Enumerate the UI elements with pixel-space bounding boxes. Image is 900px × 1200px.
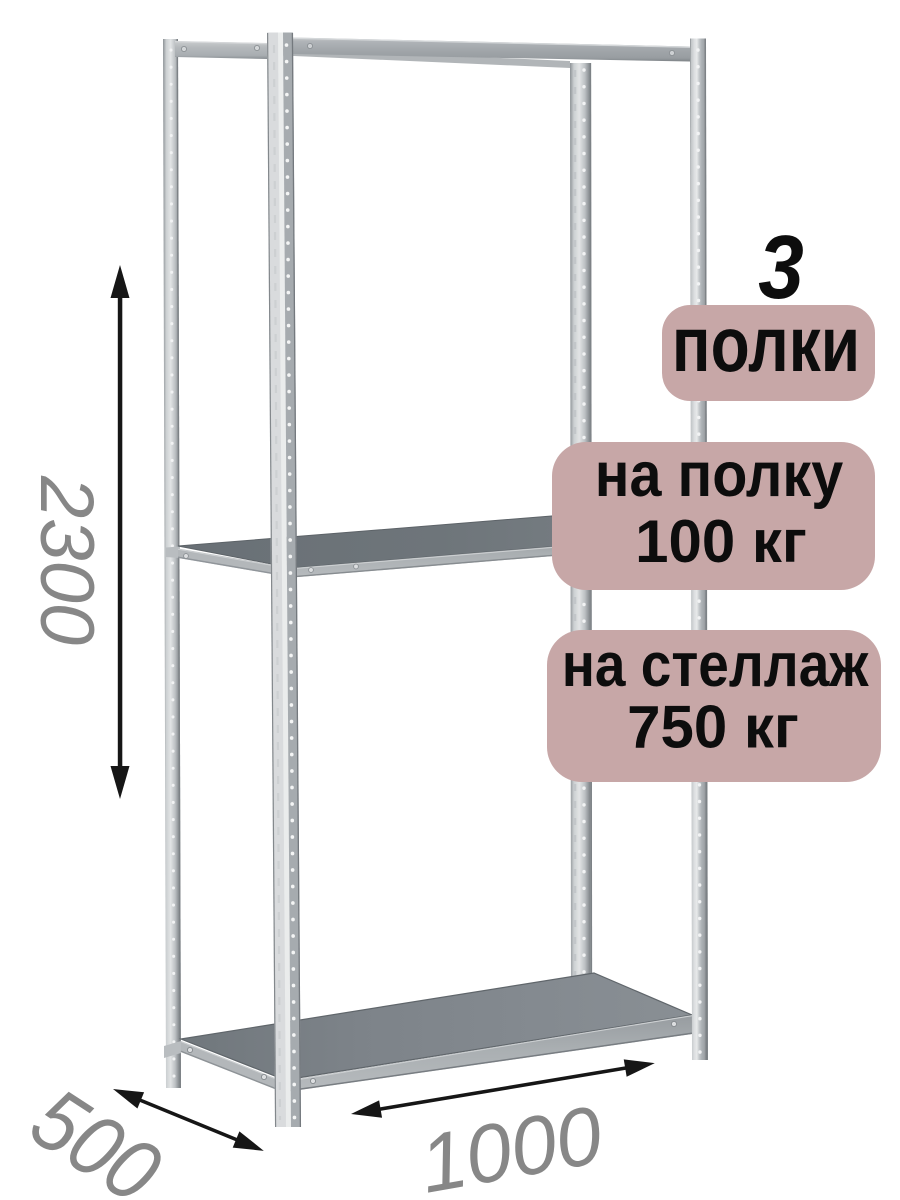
svg-text:полки: полки	[672, 301, 860, 388]
svg-text:на полку: на полку	[595, 438, 844, 509]
svg-text:750 кг: 750 кг	[627, 694, 799, 761]
svg-text:1000: 1000	[413, 1089, 608, 1200]
svg-text:2300: 2300	[24, 475, 109, 645]
svg-text:100 кг: 100 кг	[635, 508, 807, 575]
svg-text:на стеллаж: на стеллаж	[562, 631, 870, 700]
svg-text:500: 500	[15, 1069, 178, 1200]
